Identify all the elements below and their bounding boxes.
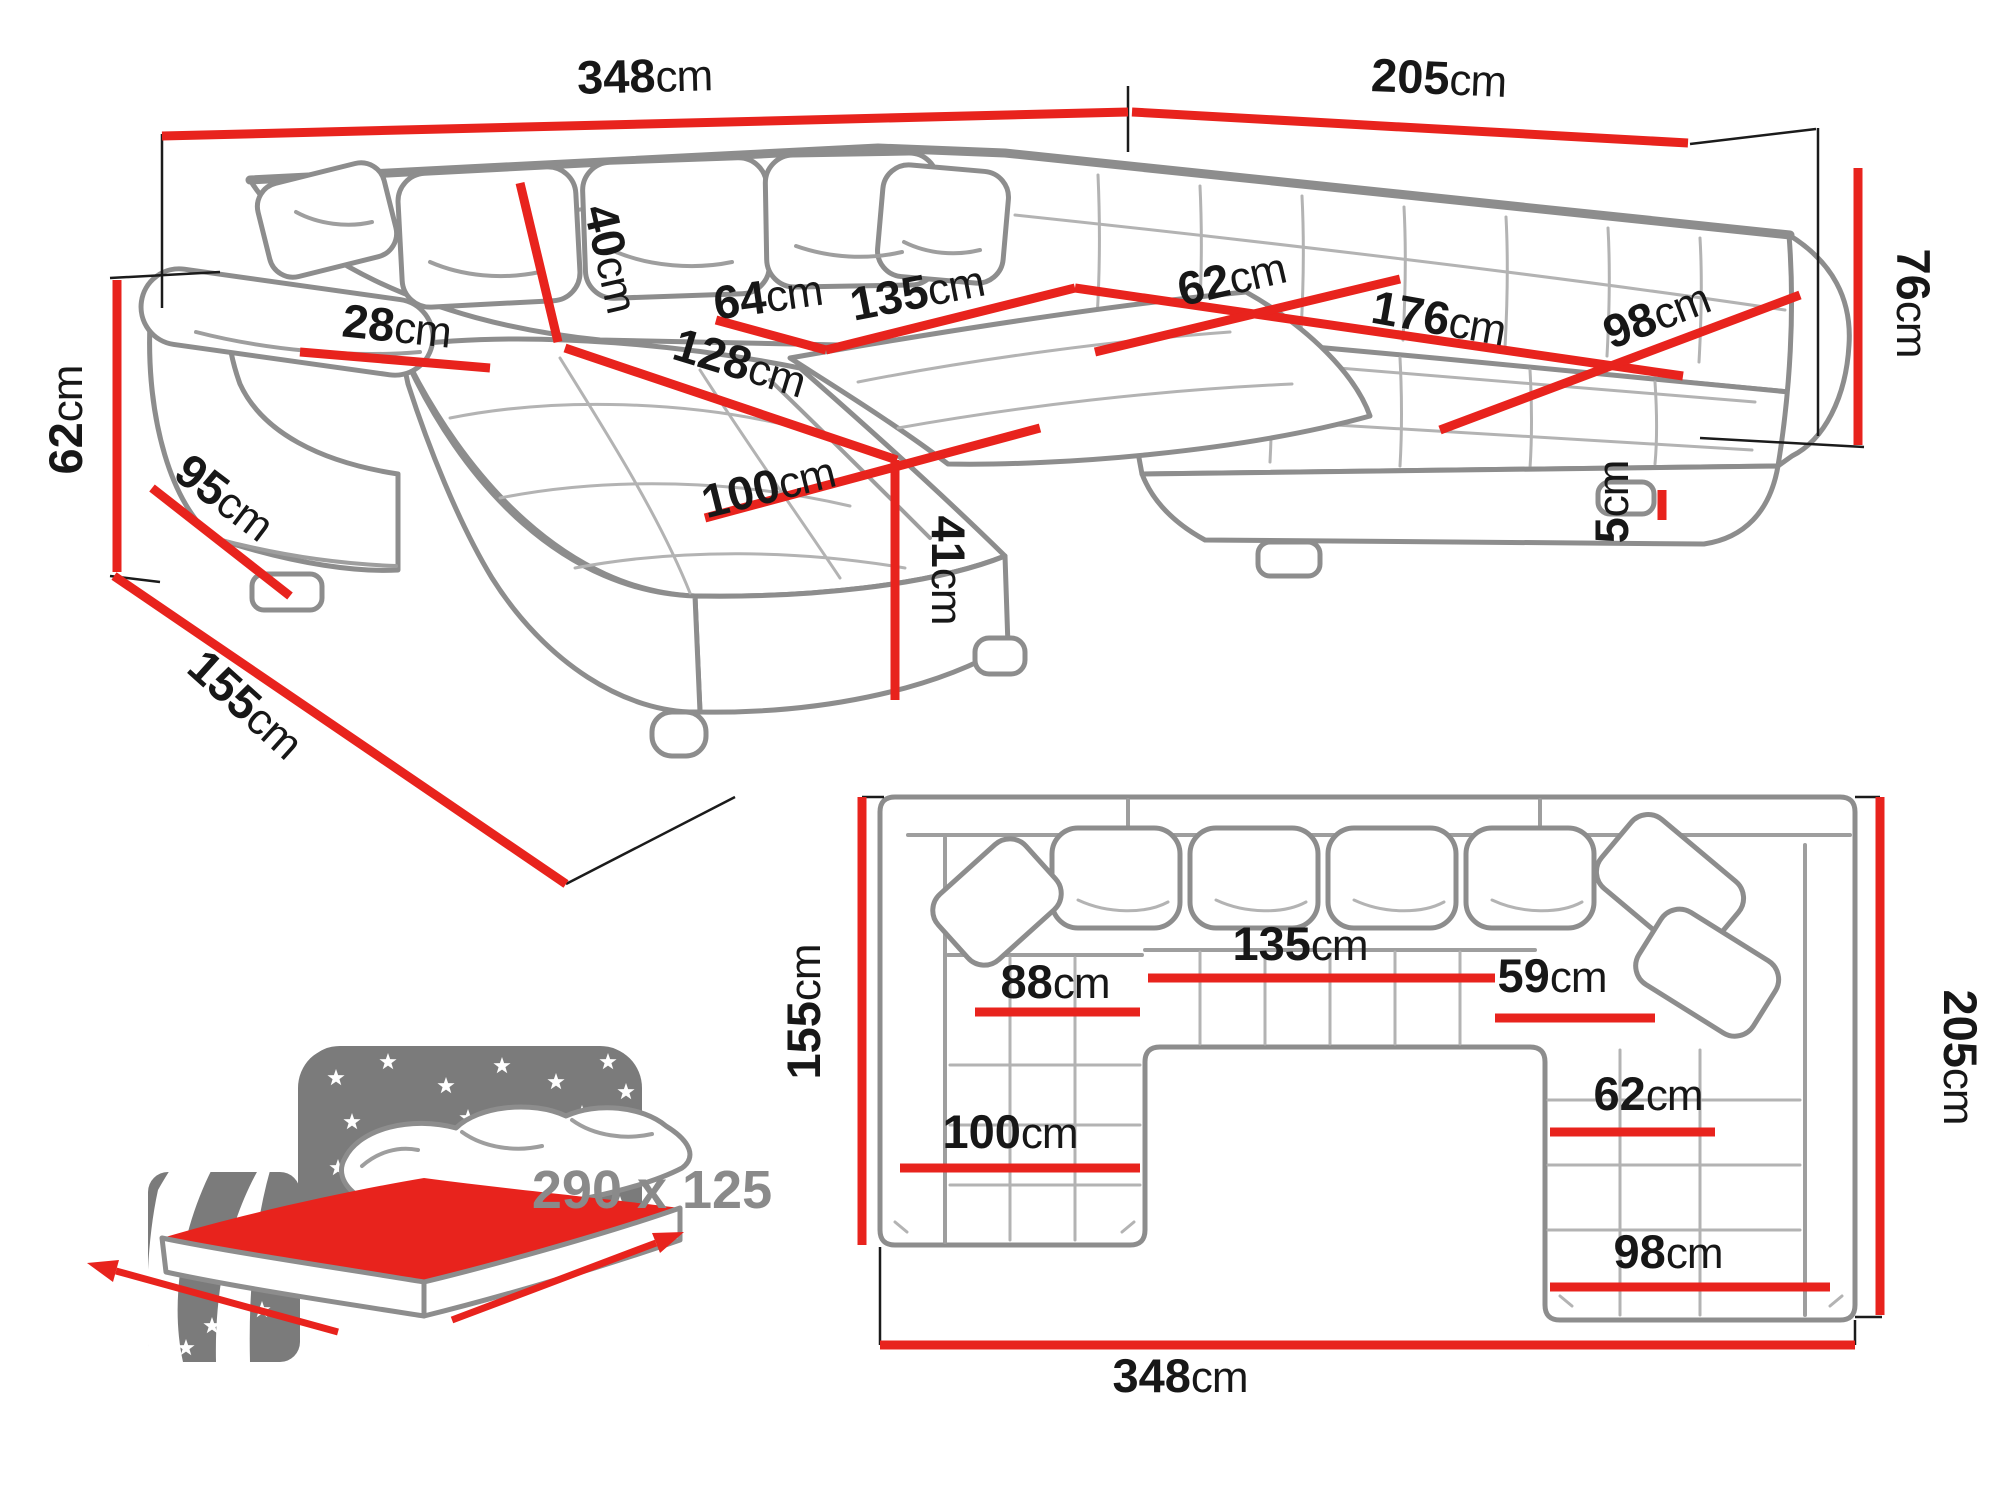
dim-value: 76	[1887, 249, 1940, 301]
dimension-diagram: 348cm 205cm 76cm 62cm 95cm 155cm 28cm 40…	[0, 0, 2000, 1500]
dim-unit: cm	[1445, 297, 1509, 355]
sleeping-area-size-label: 290 x 125	[532, 1160, 772, 1220]
dim-unit: cm	[1646, 1071, 1703, 1120]
dim-unit: cm	[655, 51, 713, 101]
dim-value: 28	[340, 294, 398, 352]
back-cushion	[1190, 828, 1318, 928]
dim-line-side-depth	[114, 576, 566, 884]
arrow-left-head-icon	[87, 1260, 119, 1282]
plan-view: 155cm 205cm 88cm 135cm 59cm 62cm 100cm 9…	[777, 797, 1987, 1402]
dim-label-plan-side-depth: 155cm	[777, 944, 830, 1079]
sofa-leg	[1258, 542, 1320, 576]
sleeping-function-icon: 290 x 125	[87, 1046, 772, 1362]
dim-unit: cm	[1666, 1229, 1723, 1278]
dim-unit: cm	[1589, 461, 1638, 518]
dim-unit: cm	[1550, 953, 1607, 1002]
dim-value: 62	[39, 422, 92, 474]
dim-value: 41	[922, 516, 975, 568]
dim-label-plan-right-depth: 205cm	[1934, 989, 1987, 1124]
back-cushion	[1466, 828, 1594, 928]
back-cushion	[397, 165, 582, 308]
sofa-leg	[652, 712, 706, 756]
dim-value: 62	[1594, 1067, 1646, 1120]
dim-value: 64	[710, 270, 769, 330]
dim-unit: cm	[1887, 301, 1936, 358]
dim-unit: cm	[392, 303, 453, 358]
dim-line-right-width	[1132, 112, 1688, 143]
dim-value: 88	[1001, 955, 1053, 1008]
dim-label-plan-right-end: 98cm	[1614, 1225, 1723, 1278]
dim-value: 205	[1370, 48, 1451, 104]
back-cushion	[1328, 828, 1456, 928]
dim-unit: cm	[1448, 56, 1507, 107]
right-seat-skirt	[1142, 466, 1778, 544]
dim-unit: cm	[1934, 1068, 1983, 1125]
dim-label-seat-height: 41cm	[922, 516, 975, 625]
dim-value: 348	[576, 49, 656, 104]
dim-line-total-width	[162, 112, 1128, 136]
right-end-cap	[1778, 235, 1849, 466]
dim-unit: cm	[43, 366, 92, 423]
perspective-view: 348cm 205cm 76cm 62cm 95cm 155cm 28cm 40…	[39, 47, 1940, 884]
dim-label-plan-total-width: 348cm	[1112, 1349, 1247, 1402]
dim-value: 59	[1498, 949, 1550, 1002]
dim-label-arm-height: 62cm	[39, 366, 92, 475]
dim-value: 348	[1112, 1349, 1190, 1402]
dim-label-plan-right-seat: 62cm	[1594, 1067, 1703, 1120]
dim-label-plan-chaise-width: 100cm	[942, 1105, 1077, 1158]
dim-value: 155	[777, 1001, 830, 1079]
dim-value: 135	[1232, 917, 1310, 970]
dim-value: 100	[942, 1105, 1020, 1158]
dim-label-plan-right-top: 59cm	[1498, 949, 1607, 1002]
sofa-perspective-drawing	[136, 148, 1849, 756]
dim-label-plan-center-seat: 135cm	[1232, 917, 1367, 970]
sofa-leg	[975, 638, 1025, 674]
dim-label-back-height: 76cm	[1887, 249, 1940, 358]
dim-unit: cm	[1191, 1353, 1248, 1402]
dim-value: 5	[1585, 517, 1638, 543]
dim-unit: cm	[922, 568, 971, 625]
dim-value: 205	[1934, 989, 1987, 1067]
dim-unit: cm	[762, 266, 825, 322]
back-cushion	[1052, 828, 1180, 928]
diagram-canvas: 348cm 205cm 76cm 62cm 95cm 155cm 28cm 40…	[0, 0, 2000, 1500]
dim-unit: cm	[1311, 921, 1368, 970]
dim-unit: cm	[781, 944, 830, 1001]
dim-label-plan-chaise-inner: 88cm	[1001, 955, 1110, 1008]
dim-label-right-width: 205cm	[1370, 48, 1507, 107]
dim-unit: cm	[1053, 959, 1110, 1008]
dim-label-leg-height: 5cm	[1585, 461, 1638, 544]
dim-label-total-width: 348cm	[576, 47, 712, 104]
dim-unit: cm	[1021, 1109, 1078, 1158]
dim-value: 98	[1614, 1225, 1666, 1278]
